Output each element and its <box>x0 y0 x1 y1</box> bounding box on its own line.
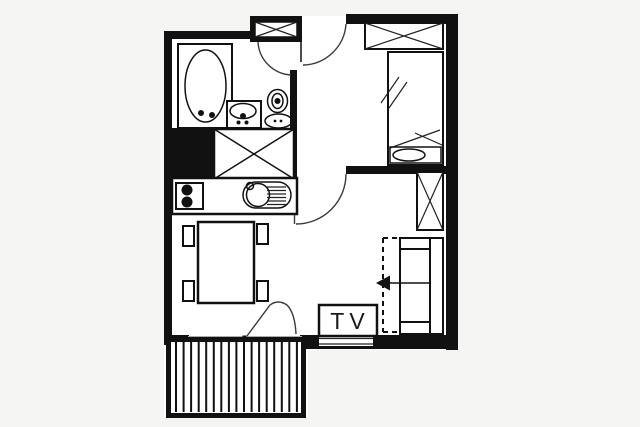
wall-bathroom-top <box>164 31 254 39</box>
vanity-tap <box>245 121 249 125</box>
single-bed <box>388 52 443 165</box>
dining-table <box>198 222 254 303</box>
sofa-bed <box>400 238 443 334</box>
bathtub-tap <box>209 112 215 118</box>
floorplan-canvas: TV <box>0 0 640 427</box>
vanity-tap <box>237 121 241 125</box>
toilet-flush <box>275 98 281 104</box>
bedroom <box>381 52 443 165</box>
kitchen <box>172 178 297 214</box>
tv-label: TV <box>330 308 369 334</box>
wall-right <box>446 14 458 350</box>
chair <box>257 281 268 301</box>
vanity-drain <box>240 113 246 119</box>
bathtub <box>178 44 232 128</box>
wall-duct-block <box>166 128 214 180</box>
stove-burner <box>182 185 193 196</box>
balcony <box>169 340 304 416</box>
chair <box>257 224 268 244</box>
toilet-dot <box>280 120 283 123</box>
floor-plan-svg: TV <box>0 0 640 427</box>
bathtub-drain <box>198 110 204 116</box>
toilet-dot <box>274 120 277 123</box>
chair <box>183 226 194 246</box>
stove-burner <box>182 197 193 208</box>
chair <box>183 281 194 301</box>
